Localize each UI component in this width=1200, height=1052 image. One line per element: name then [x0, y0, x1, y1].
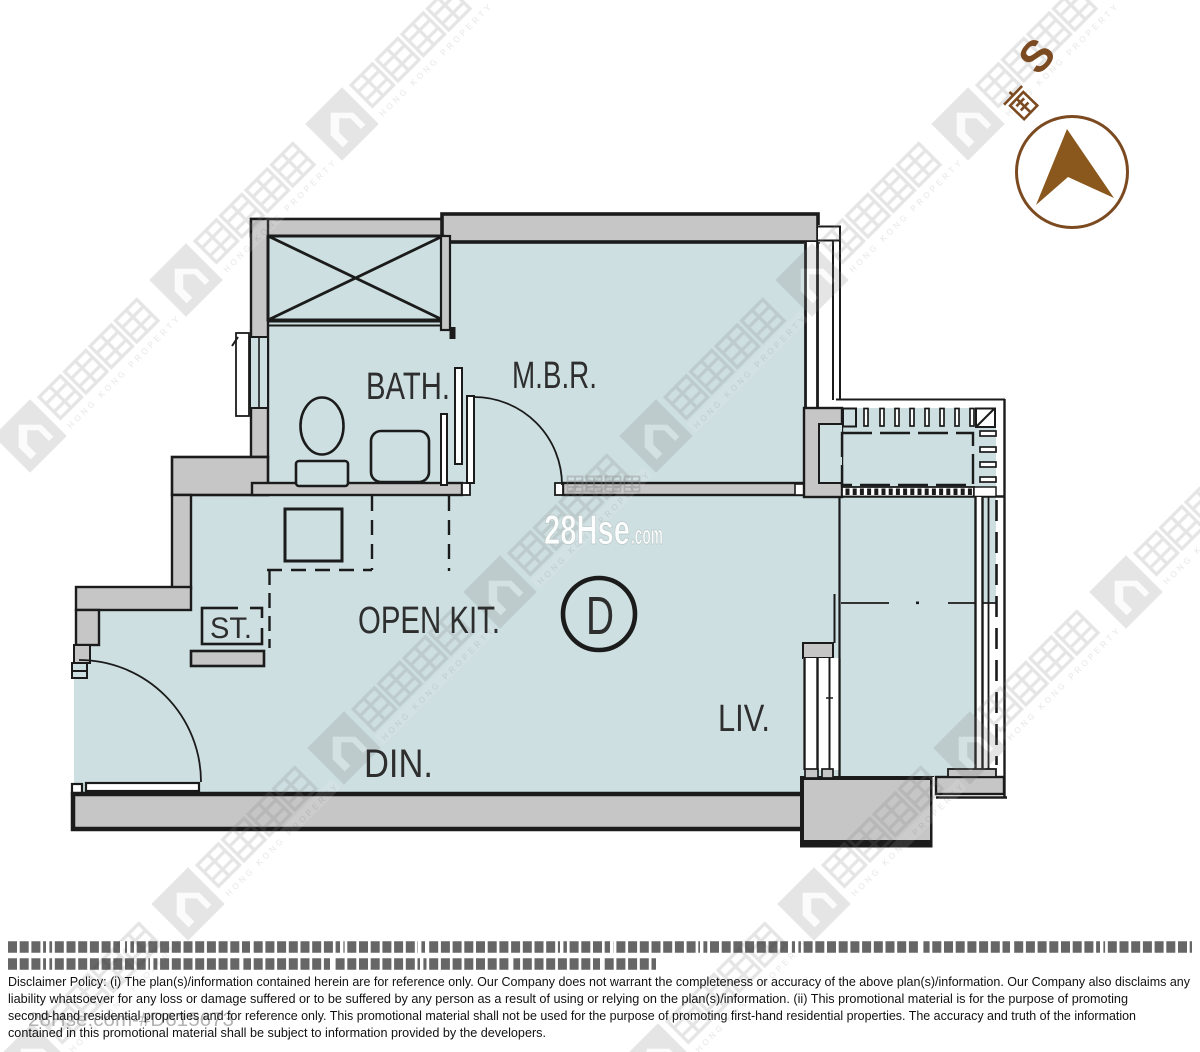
svg-text:ST.: ST.: [210, 612, 252, 645]
svg-text:contained in this promotional: contained in this promotional material s…: [8, 1025, 546, 1040]
svg-text:.com: .com: [631, 520, 663, 550]
svg-text:OPEN KIT.: OPEN KIT.: [358, 600, 500, 642]
svg-text:M.B.R.: M.B.R.: [512, 355, 597, 397]
svg-text:BATH.: BATH.: [366, 366, 450, 408]
svg-text:second-hand residential proper: second-hand residential properties and f…: [8, 1008, 1136, 1023]
svg-text:DIN.: DIN.: [364, 742, 433, 786]
svg-text:D: D: [586, 586, 614, 646]
svg-text:liability whatsoever for any l: liability whatsoever for any loss or dam…: [8, 991, 1128, 1006]
svg-text:Disclaimer Policy: (i) The pla: Disclaimer Policy: (i) The plan(s)/infor…: [8, 974, 1191, 989]
svg-text:28Hse: 28Hse: [544, 506, 630, 553]
svg-text:LIV.: LIV.: [718, 698, 770, 740]
